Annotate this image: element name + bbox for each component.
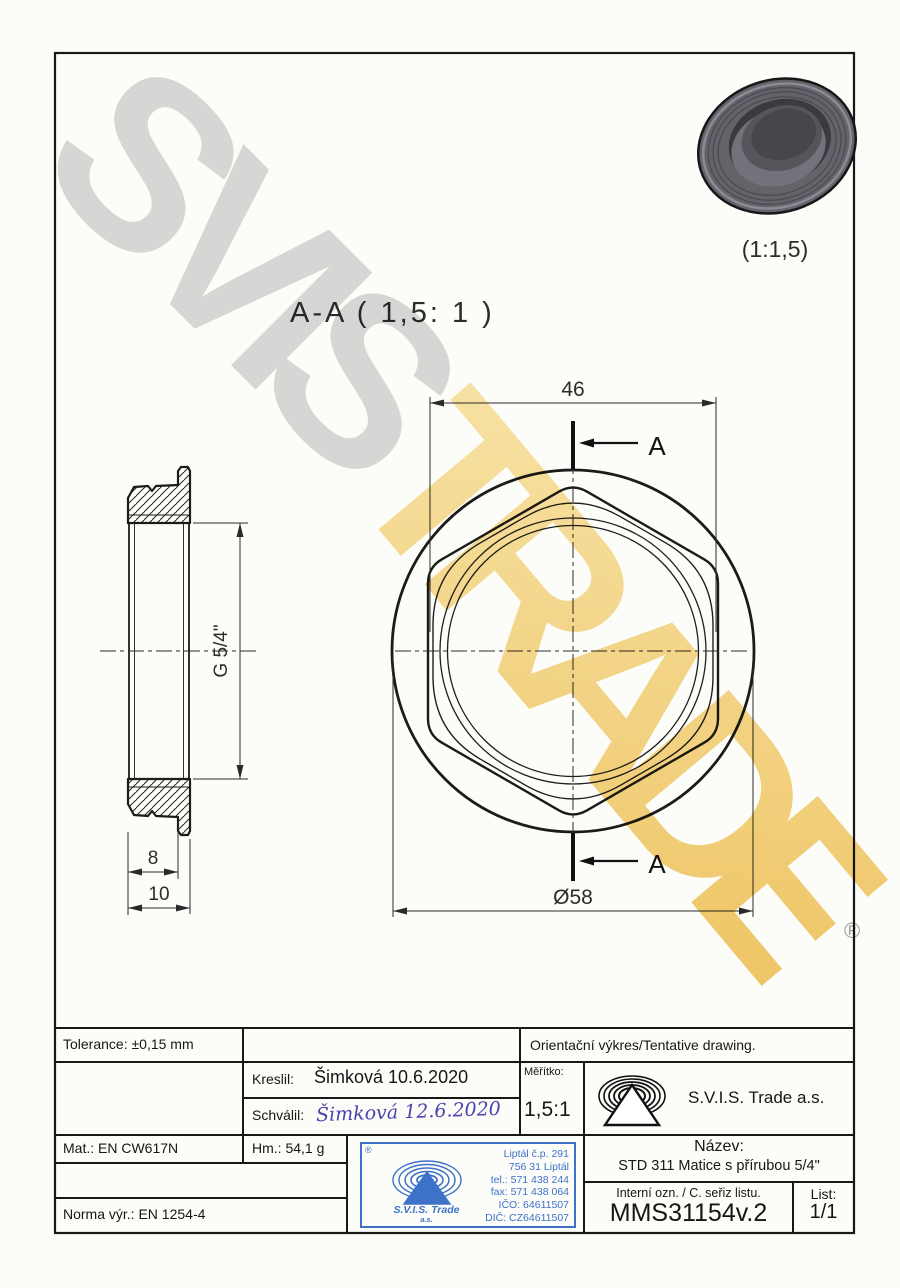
stamp-logo-icon: [372, 1154, 482, 1206]
section-view: [100, 467, 260, 915]
nazev-label: Název:: [584, 1138, 854, 1156]
norma-field: Norma výr.: EN 1254-4: [63, 1206, 205, 1222]
schvalil-label: Schválil:: [252, 1107, 304, 1123]
cut-arrow-bottom: [579, 857, 638, 866]
stamp-phone-line: tel.: 571 438 244: [485, 1174, 569, 1187]
list-label: List:: [793, 1186, 854, 1202]
mass-field: Hm.: 54,1 g: [252, 1140, 324, 1156]
stamp-ico-line: IČO: 64611507: [485, 1199, 569, 1212]
dim-across-flats: 46: [561, 378, 584, 401]
iso-view-ring: [681, 59, 874, 234]
company-name: S.V.I.S. Trade a.s.: [688, 1088, 824, 1108]
registered-trademark-icon: ®: [844, 918, 860, 944]
material-field: Mat.: EN CW617N: [63, 1140, 178, 1156]
stamp-address-line: Liptál č.p. 291: [485, 1148, 569, 1161]
dim-outer-diameter: Ø58: [553, 886, 593, 909]
stamp-company-suffix: a.s.: [420, 1215, 433, 1224]
dim-body-thickness: 8: [148, 848, 159, 869]
iso-scale-label: (1:1,5): [742, 236, 808, 262]
sheet-border: [55, 53, 854, 1233]
kreslil-value: Šimková 10.6.2020: [314, 1067, 468, 1088]
drawing-sheet: A-A ( 1,5: 1 ) (1:1,5) A A 46 Ø58 G 5/4"…: [0, 0, 900, 1288]
list-value: 1/1: [793, 1201, 854, 1224]
section-title: A-A ( 1,5: 1 ): [290, 297, 495, 329]
nazev-value: STD 311 Matice s přírubou 5/4": [584, 1158, 854, 1174]
company-stamp: ® S.V.I.S. Trade a.s. Liptál č.p. 291 75…: [360, 1142, 576, 1228]
kreslil-label: Kreslil:: [252, 1071, 294, 1087]
stamp-address-line: 756 31 Liptál: [485, 1161, 569, 1174]
meritko-label: Měřítko:: [524, 1066, 564, 1078]
stamp-registered-icon: ®: [365, 1145, 372, 1155]
dim-thread: G 5/4": [211, 624, 232, 677]
front-view: [392, 397, 754, 917]
tolerance-field: Tolerance: ±0,15 mm: [63, 1036, 194, 1052]
interni-label: Interní ozn. / C. seřiz listu.: [584, 1186, 793, 1200]
cut-label-bottom: A: [648, 849, 666, 879]
interni-value: MMS31154v.2: [584, 1199, 793, 1228]
stamp-fax-line: fax: 571 438 064: [485, 1186, 569, 1199]
cut-label-top: A: [648, 431, 666, 461]
dim-total-thickness: 10: [148, 884, 169, 905]
meritko-value: 1,5:1: [524, 1098, 571, 1122]
orientation-note: Orientační výkres/Tentative drawing.: [530, 1037, 756, 1053]
cut-arrow-top: [579, 439, 638, 448]
stamp-dic-line: DIČ: CZ64611507: [485, 1212, 569, 1225]
svis-logo-icon: [599, 1076, 665, 1125]
